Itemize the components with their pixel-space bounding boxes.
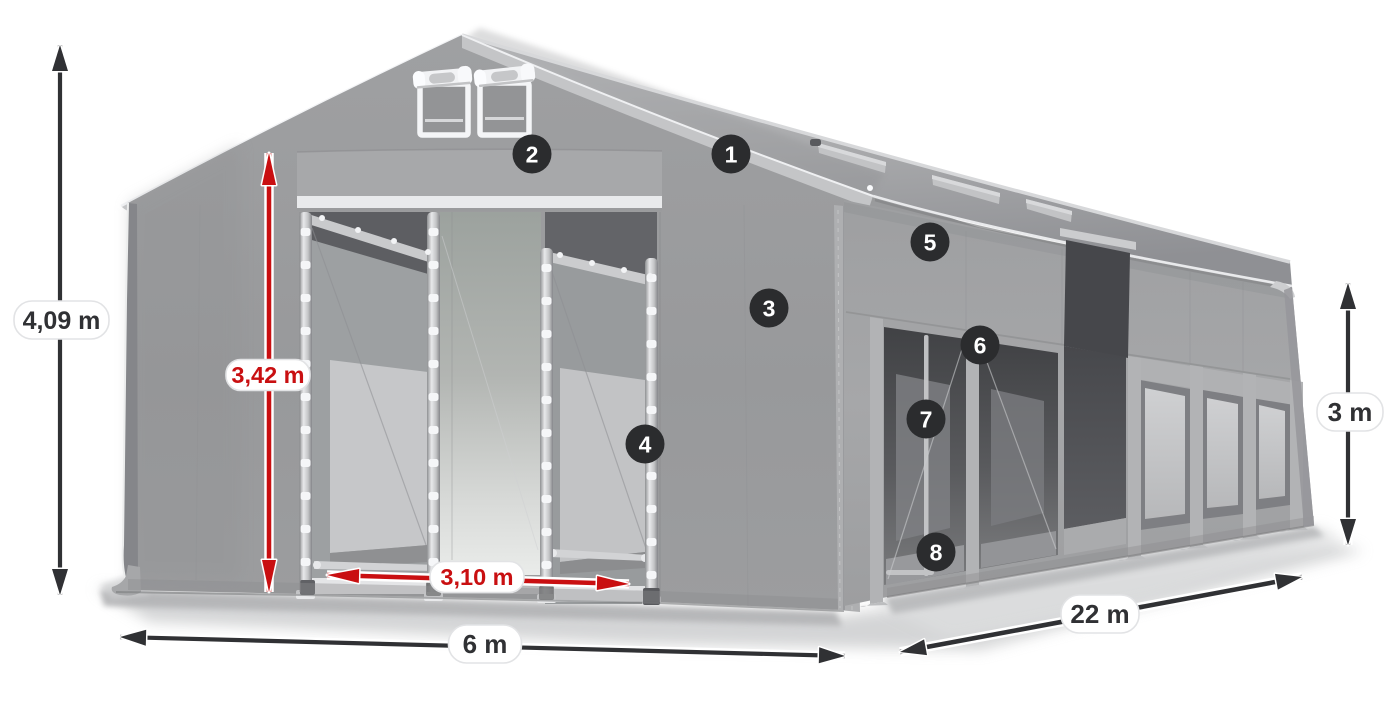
svg-text:3,42 m: 3,42 m: [231, 362, 304, 388]
svg-text:1: 1: [725, 142, 738, 168]
svg-text:6 m: 6 m: [463, 629, 508, 659]
svg-text:5: 5: [924, 230, 937, 256]
svg-text:2: 2: [526, 142, 539, 168]
svg-text:3: 3: [763, 296, 776, 322]
svg-text:3 m: 3 m: [1328, 397, 1373, 427]
svg-text:4: 4: [639, 432, 652, 458]
svg-text:8: 8: [930, 540, 943, 566]
svg-text:4,09 m: 4,09 m: [23, 307, 101, 335]
svg-text:6: 6: [974, 333, 987, 359]
svg-text:3,10 m: 3,10 m: [440, 564, 513, 590]
svg-text:22 m: 22 m: [1070, 599, 1129, 629]
svg-text:7: 7: [920, 407, 933, 433]
